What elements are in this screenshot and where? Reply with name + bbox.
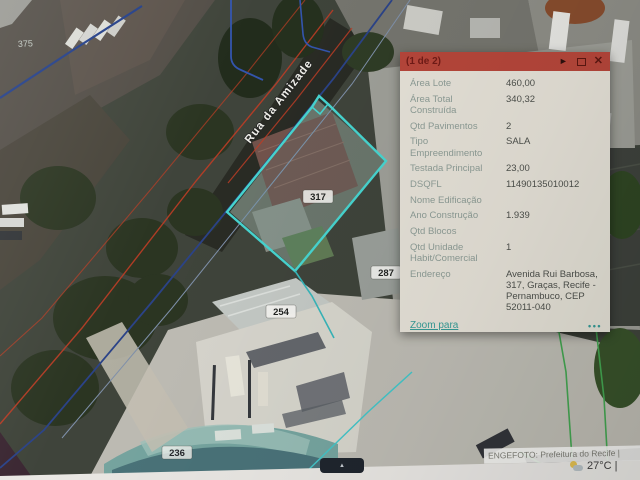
field-value: 340,32 xyxy=(506,94,602,116)
parcel-badge-317-label: 317 xyxy=(310,192,326,203)
popup-footer: Zoom para ••• xyxy=(410,318,602,332)
field-value: 1 xyxy=(506,242,602,264)
field-row: Área Total Construída340,32 xyxy=(410,94,602,116)
gis-app-window: 375 Rua da Amizade 317 287 254 236 (1 de… xyxy=(0,0,640,480)
field-row: Qtd Pavimentos2 xyxy=(410,121,602,132)
field-row: DSQFL11490135010012 xyxy=(410,179,602,190)
field-value: Avenida Rui Barbosa, 317, Graças, Recife… xyxy=(506,269,602,314)
popup-title: (1 de 2) xyxy=(406,56,441,67)
field-value: 2 xyxy=(506,121,602,132)
parcel-badge-236-label: 236 xyxy=(169,448,185,459)
field-value xyxy=(506,226,602,237)
field-label: Área Total Construída xyxy=(410,94,506,116)
field-row: Qtd Unidade Habit/Comercial1 xyxy=(410,242,602,264)
field-label: Qtd Unidade Habit/Comercial xyxy=(410,242,506,264)
feature-popup-header: (1 de 2) ► ✕ xyxy=(400,52,610,71)
field-value: 1.939 xyxy=(506,210,602,221)
field-row: Nome Edificação xyxy=(410,195,602,206)
field-label: Ano Construção xyxy=(410,210,506,221)
field-label: DSQFL xyxy=(410,179,506,190)
parcel-badge-236: 236 xyxy=(162,446,192,459)
field-value: 11490135010012 xyxy=(506,179,602,190)
close-icon[interactable]: ✕ xyxy=(594,56,603,67)
field-row: EndereçoAvenida Rui Barbosa, 317, Graças… xyxy=(410,269,602,314)
parcel-label-375: 375 xyxy=(18,38,34,49)
field-label: Área Lote xyxy=(410,78,506,89)
next-feature-icon[interactable]: ► xyxy=(559,57,568,66)
field-row: Ano Construção1.939 xyxy=(410,210,602,221)
field-label: Endereço xyxy=(410,269,506,314)
field-value: 23,00 xyxy=(506,163,602,174)
parcel-badge-287-label: 287 xyxy=(378,268,394,279)
zoom-to-link[interactable]: Zoom para xyxy=(410,320,458,332)
field-value: 460,00 xyxy=(506,78,602,89)
feature-popup: (1 de 2) ► ✕ Área Lote460,00 Área Total … xyxy=(400,52,610,332)
field-label: Tipo Empreendimento xyxy=(410,136,506,158)
field-value xyxy=(506,195,602,206)
field-label: Testada Principal xyxy=(410,163,506,174)
field-label: Qtd Pavimentos xyxy=(410,121,506,132)
attribution-toggle-button[interactable]: ▲ xyxy=(320,458,364,473)
field-label: Qtd Blocos xyxy=(410,226,506,237)
partly-sunny-icon xyxy=(570,461,583,472)
field-row: Testada Principal23,00 xyxy=(410,163,602,174)
popup-body: Área Lote460,00 Área Total Construída340… xyxy=(400,71,610,332)
weather-temperature: 27°C | xyxy=(587,460,618,472)
field-value: SALA xyxy=(506,136,602,158)
field-label: Nome Edificação xyxy=(410,195,506,206)
field-row: Tipo EmpreendimentoSALA xyxy=(410,136,602,158)
parcel-badge-317: 317 xyxy=(303,190,333,203)
field-row: Qtd Blocos xyxy=(410,226,602,237)
parcel-badge-254: 254 xyxy=(266,305,296,318)
more-options-icon[interactable]: ••• xyxy=(588,321,602,332)
parcel-badge-254-label: 254 xyxy=(273,307,290,318)
caret-up-icon: ▲ xyxy=(339,463,345,469)
field-row: Área Lote460,00 xyxy=(410,78,602,89)
parcel-badge-287: 287 xyxy=(371,266,401,279)
taskbar-weather-widget[interactable]: 27°C | xyxy=(570,460,618,472)
maximize-icon[interactable] xyxy=(577,58,586,66)
